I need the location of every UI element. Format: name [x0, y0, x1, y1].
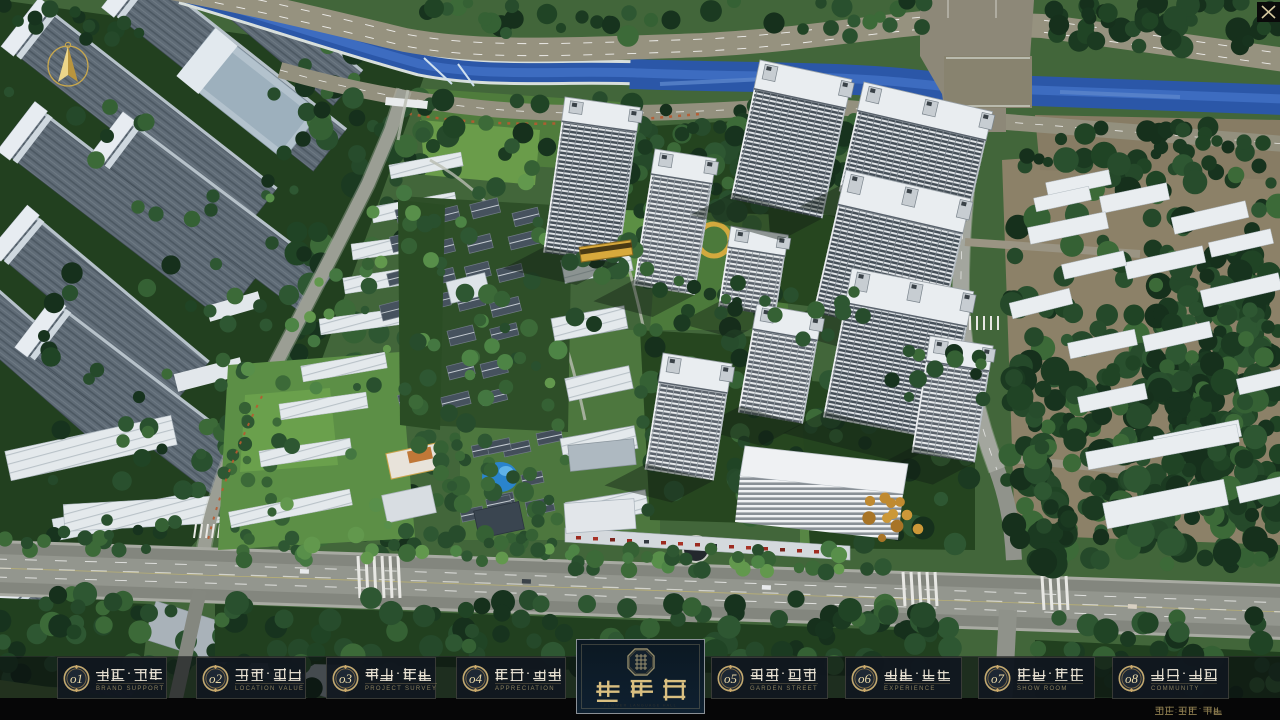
svg-text:o6: o6: [858, 671, 872, 686]
svg-text:o7: o7: [991, 671, 1005, 686]
svg-text:o8: o8: [1125, 671, 1139, 686]
svg-text:o2: o2: [209, 671, 223, 686]
svg-text:o5: o5: [724, 671, 738, 686]
svg-text:o1: o1: [70, 671, 83, 686]
svg-text:o4: o4: [469, 671, 483, 686]
svg-text:o3: o3: [339, 671, 353, 686]
